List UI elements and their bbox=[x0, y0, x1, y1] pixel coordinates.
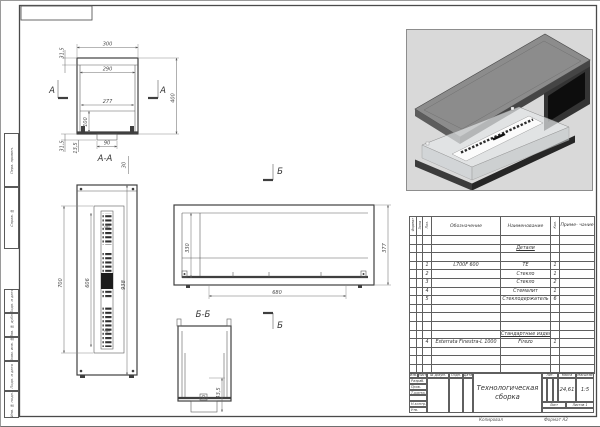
table-row: 4Esterrata Finestra-L 1000Firezo1 bbox=[410, 339, 595, 348]
3d-viewport bbox=[406, 29, 593, 191]
section-bb-label: Б-Б bbox=[196, 310, 211, 320]
drawing-sheet: .ol{stroke:#3f3f3f;fill:none;stroke-widt… bbox=[0, 0, 600, 427]
row-utv: Утв. bbox=[409, 407, 427, 413]
side-view: 330 377 680 Б Б bbox=[174, 164, 391, 331]
dim-30: 30 bbox=[122, 162, 128, 168]
title-block: Изм. Лист № докум. Подп. Дата Разраб. Пр… bbox=[409, 372, 594, 413]
designation-box bbox=[21, 6, 92, 20]
sheets-value: 1 bbox=[585, 403, 587, 407]
section-mark-b-top: Б bbox=[277, 167, 283, 177]
stamp-perv-primen: Перв. примен. bbox=[4, 133, 19, 187]
section-aa-label: А-А bbox=[97, 154, 113, 164]
bottom-tab bbox=[97, 134, 117, 140]
mass-value: 24,61 bbox=[558, 378, 576, 402]
stamp-sprav-no: Справ. № bbox=[4, 187, 19, 249]
burner-label bbox=[101, 273, 113, 289]
stamp-inv-podl: Инв. № подл. bbox=[4, 391, 19, 418]
dim-400: 400 bbox=[171, 93, 177, 103]
section-bb-view: Б-Б 43,5 bbox=[177, 310, 231, 412]
table-row: 2Стекло1 bbox=[410, 270, 595, 279]
section-aa-view: А-А 30 700 606 938 bbox=[58, 154, 137, 378]
section-standard-row: Стандартные изделия bbox=[410, 330, 595, 339]
table-row: 3Стекло2 bbox=[410, 278, 595, 287]
col-qty: Кол. bbox=[551, 217, 560, 236]
drawing-title: Технологическая сборка bbox=[473, 372, 542, 413]
dim-90: 90 bbox=[104, 141, 110, 147]
spec-table: Формат Зона Поз. Обозначение Наименовани… bbox=[409, 216, 595, 374]
section-mark-a-left: А bbox=[48, 86, 55, 96]
stamp-vzam-inv: Взам. инв. № bbox=[4, 337, 19, 361]
dim-100: 100 bbox=[83, 117, 89, 127]
stamp-podp-data-1: Подп. и дата bbox=[4, 289, 19, 313]
stamp-inv-dubl: Инв. № дубл. bbox=[4, 313, 19, 337]
dim-135: 13,5 bbox=[73, 142, 79, 153]
dim-315-top: 31,5 bbox=[60, 47, 66, 58]
col-pos: Поз. bbox=[423, 217, 432, 236]
section-mark-a-right: А bbox=[159, 86, 166, 96]
dim-300: 300 bbox=[103, 42, 113, 48]
col-designation: Обозначение bbox=[432, 217, 501, 236]
section-details-row: Детали bbox=[410, 244, 595, 253]
dim-938: 938 bbox=[121, 280, 127, 290]
dim-606: 606 bbox=[85, 278, 91, 288]
dim-700: 700 bbox=[58, 278, 64, 288]
bottom-tab bbox=[191, 401, 217, 412]
stamp-podp-data-2: Подп. и дата bbox=[4, 361, 19, 391]
dim-330: 330 bbox=[185, 243, 191, 253]
dim-315-bot: 31,5 bbox=[60, 140, 66, 151]
col-format: Формат bbox=[410, 217, 417, 236]
scale-value: 1:5 bbox=[576, 378, 594, 402]
dim-435: 43,5 bbox=[216, 387, 222, 398]
col-note: Приме- чание bbox=[560, 217, 595, 236]
format-caption: Формат А2 bbox=[521, 417, 591, 422]
dim-377: 377 bbox=[382, 242, 388, 252]
section-mark-b-bottom: Б bbox=[277, 321, 283, 331]
table-row: 4Стемалит1 bbox=[410, 287, 595, 296]
table-row: 5Стеклодержатель6 bbox=[410, 296, 595, 305]
table-row: 1L700F 600ТЕ1 bbox=[410, 261, 595, 270]
kopiroval-caption: Копировал bbox=[461, 417, 521, 422]
dim-277: 277 bbox=[103, 99, 113, 105]
col-name: Наименование bbox=[501, 217, 551, 236]
3d-render bbox=[407, 30, 592, 190]
dim-290: 290 bbox=[103, 67, 113, 73]
front-view: 300 31,5 290 277 400 100 31,5 13,5 90 А bbox=[48, 42, 179, 154]
spec-header-row: Формат Зона Поз. Обозначение Наименовани… bbox=[410, 217, 595, 236]
foot-right bbox=[130, 126, 134, 132]
dim-680: 680 bbox=[272, 290, 282, 296]
